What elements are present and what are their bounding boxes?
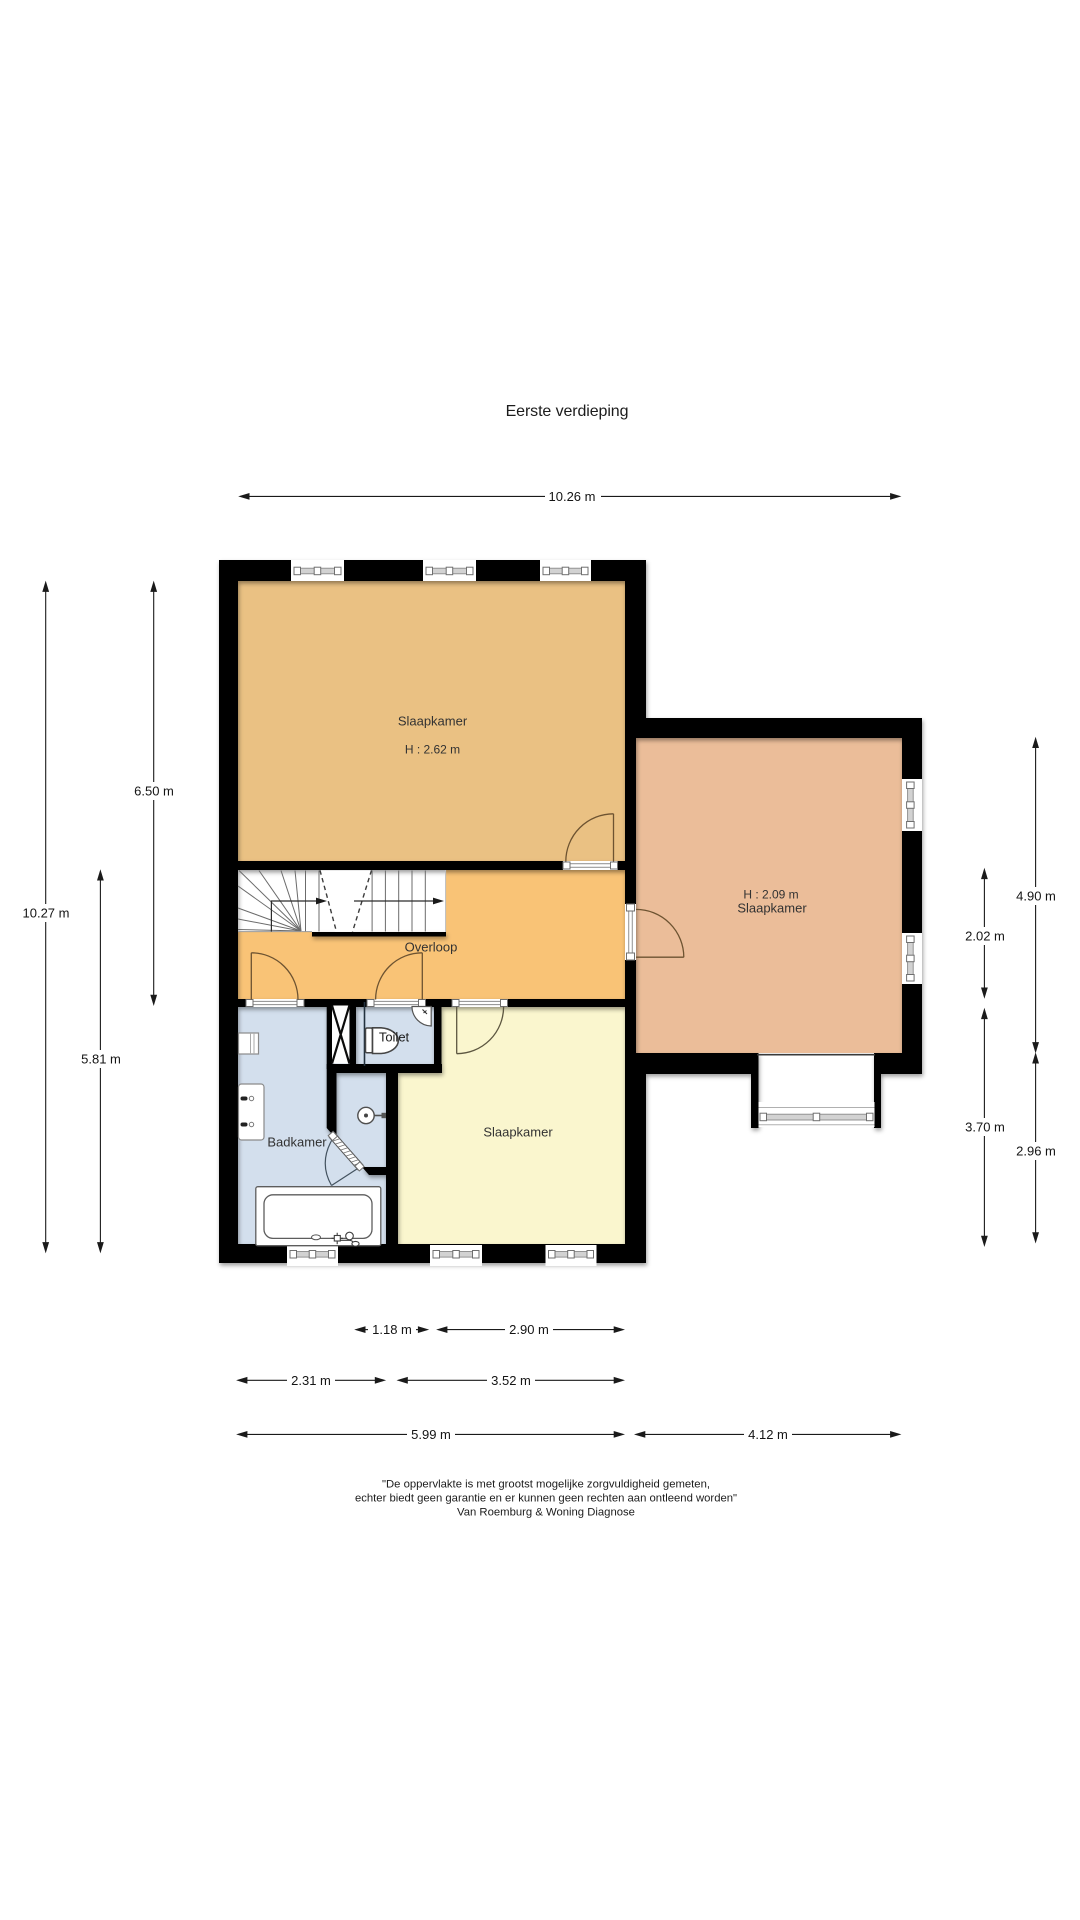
svg-text:Toilet: Toilet — [379, 1029, 410, 1044]
svg-text:2.90 m: 2.90 m — [509, 1322, 549, 1337]
svg-text:H : 2.62 m: H : 2.62 m — [405, 743, 460, 757]
svg-text:Eerste verdieping: Eerste verdieping — [506, 403, 629, 420]
svg-text:4.12 m: 4.12 m — [748, 1427, 788, 1442]
svg-text:Van Roemburg & Woning Diagnose: Van Roemburg & Woning Diagnose — [457, 1507, 635, 1519]
svg-text:Overloop: Overloop — [405, 940, 458, 955]
svg-text:echter biedt geen garantie en: echter biedt geen garantie en er kunnen … — [355, 1493, 737, 1505]
svg-text:2.02 m: 2.02 m — [965, 929, 1005, 944]
svg-text:Badkamer: Badkamer — [267, 1135, 327, 1150]
svg-text:Slaapkamer: Slaapkamer — [398, 713, 468, 728]
svg-text:4.90 m: 4.90 m — [1016, 889, 1056, 904]
svg-text:10.26 m: 10.26 m — [549, 489, 596, 504]
svg-text:3.52 m: 3.52 m — [491, 1373, 531, 1388]
svg-text:Slaapkamer: Slaapkamer — [737, 901, 807, 916]
svg-text:1.18 m: 1.18 m — [372, 1322, 412, 1337]
svg-text:H : 2.09 m: H : 2.09 m — [743, 888, 798, 902]
svg-text:3.70 m: 3.70 m — [965, 1120, 1005, 1135]
svg-text:10.27 m: 10.27 m — [23, 906, 70, 921]
svg-text:5.99 m: 5.99 m — [411, 1427, 451, 1442]
svg-text:5.81 m: 5.81 m — [81, 1052, 121, 1067]
svg-text:Slaapkamer: Slaapkamer — [483, 1125, 553, 1140]
svg-text:2.31 m: 2.31 m — [291, 1373, 331, 1388]
svg-text:2.96 m: 2.96 m — [1016, 1144, 1056, 1159]
svg-text:"De oppervlakte is met grootst: "De oppervlakte is met grootst mogelijke… — [382, 1479, 710, 1491]
svg-text:6.50 m: 6.50 m — [134, 784, 174, 799]
